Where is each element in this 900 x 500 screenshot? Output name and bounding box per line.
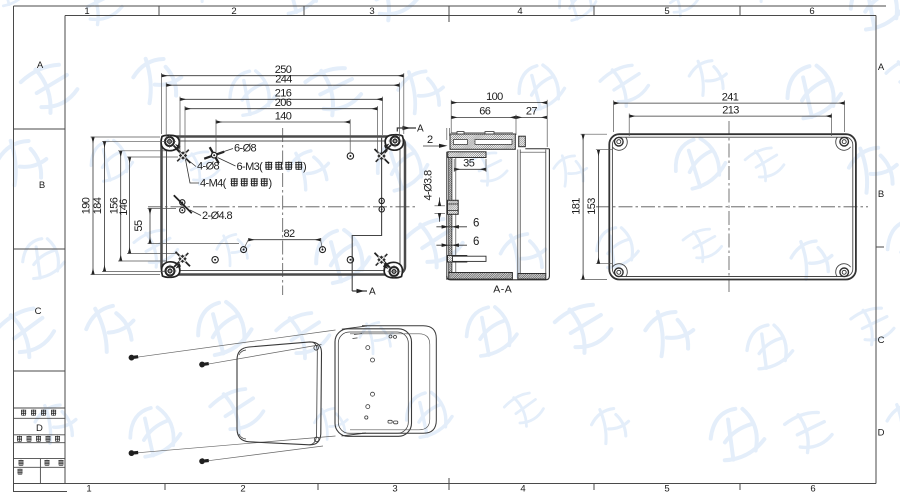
svg-text:140: 140 xyxy=(275,110,292,122)
svg-text:6: 6 xyxy=(473,218,479,230)
svg-text:66: 66 xyxy=(479,106,491,118)
svg-text:244: 244 xyxy=(275,74,292,86)
svg-text:1: 1 xyxy=(84,6,89,17)
svg-text:4: 4 xyxy=(520,484,525,495)
svg-text:C: C xyxy=(878,335,885,346)
svg-text:6-Ø8: 6-Ø8 xyxy=(234,143,257,155)
svg-text:3: 3 xyxy=(392,484,397,495)
svg-text:35: 35 xyxy=(463,158,475,170)
svg-text:153: 153 xyxy=(586,198,598,215)
svg-text:B: B xyxy=(39,180,45,191)
svg-text:4-Ø3.8: 4-Ø3.8 xyxy=(423,170,435,201)
svg-text:1: 1 xyxy=(86,484,91,495)
svg-text:): ) xyxy=(269,178,272,190)
svg-text:206: 206 xyxy=(275,97,292,109)
svg-text:181: 181 xyxy=(570,198,582,215)
svg-text:6: 6 xyxy=(473,236,479,248)
svg-text:A: A xyxy=(37,60,44,71)
svg-text:100: 100 xyxy=(486,91,503,103)
svg-text:82: 82 xyxy=(283,228,295,240)
svg-text:4: 4 xyxy=(517,6,522,17)
svg-text:A-A: A-A xyxy=(493,284,512,296)
svg-text:A: A xyxy=(417,124,424,135)
svg-text:241: 241 xyxy=(722,91,739,103)
svg-text:6: 6 xyxy=(810,484,815,495)
svg-text:C: C xyxy=(35,306,42,317)
svg-text:5: 5 xyxy=(664,484,669,495)
svg-text:213: 213 xyxy=(722,104,739,116)
svg-text:D: D xyxy=(36,423,43,434)
svg-text:184: 184 xyxy=(92,197,104,214)
svg-text:6: 6 xyxy=(809,6,814,17)
svg-text:2: 2 xyxy=(427,134,433,146)
svg-text:4-M4(: 4-M4( xyxy=(200,178,227,190)
svg-text:55: 55 xyxy=(133,220,145,232)
svg-text:2: 2 xyxy=(240,484,245,495)
svg-text:146: 146 xyxy=(118,199,130,216)
svg-text:A: A xyxy=(878,62,885,73)
svg-text:4-Ø8: 4-Ø8 xyxy=(197,161,220,173)
svg-text:2-Ø4.8: 2-Ø4.8 xyxy=(202,210,233,222)
svg-text:B: B xyxy=(878,189,884,200)
svg-text:6-M3(: 6-M3( xyxy=(237,161,264,173)
svg-text:D: D xyxy=(878,428,885,439)
svg-text:2: 2 xyxy=(231,6,236,17)
svg-text:3: 3 xyxy=(369,6,374,17)
svg-text:27: 27 xyxy=(526,106,538,118)
svg-text:): ) xyxy=(303,161,306,173)
svg-text:A: A xyxy=(369,287,376,298)
svg-text:190: 190 xyxy=(81,197,93,214)
svg-text:5: 5 xyxy=(664,6,669,17)
